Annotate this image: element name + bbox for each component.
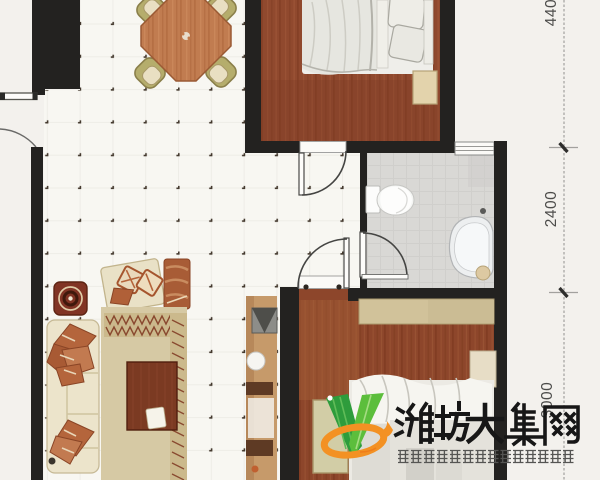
svg-text:2400: 2400 — [543, 191, 560, 227]
svg-text:4400: 4400 — [543, 0, 560, 26]
svg-text:3000: 3000 — [539, 382, 556, 418]
